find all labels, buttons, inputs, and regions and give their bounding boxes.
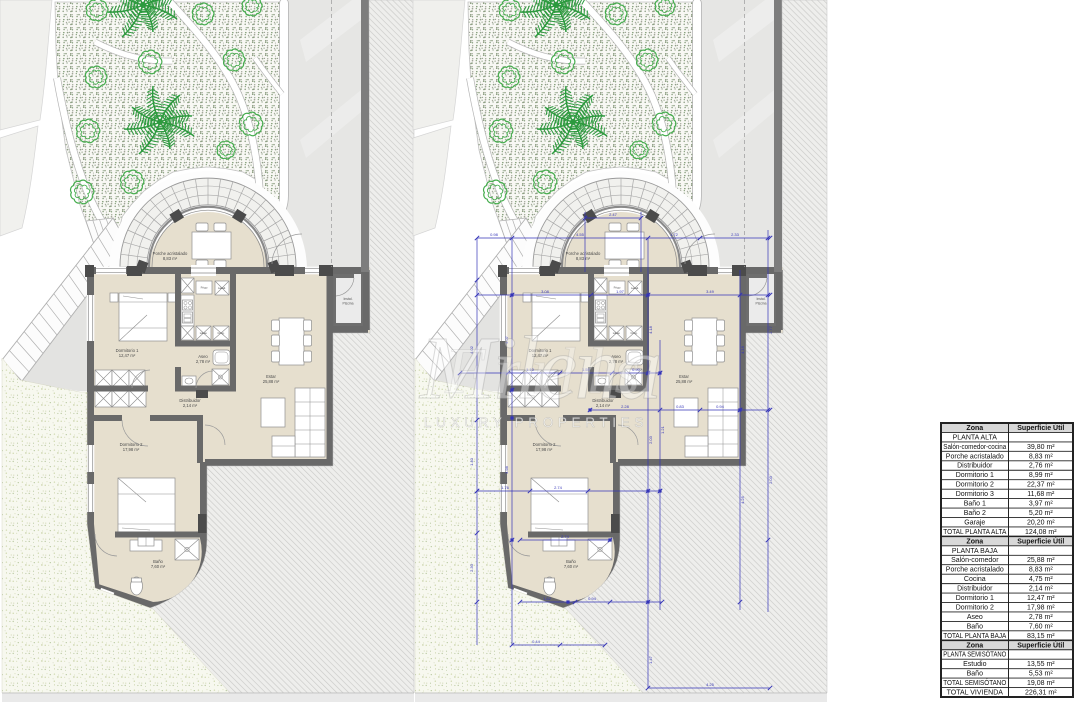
svg-text:22,37 m²: 22,37 m² [1027, 482, 1055, 489]
svg-text:Zona: Zona [966, 425, 983, 432]
svg-text:2,14 m²: 2,14 m² [183, 403, 198, 408]
svg-text:12,47 m²: 12,47 m² [1027, 595, 1055, 602]
svg-text:Porche acristalado: Porche acristalado [946, 453, 1004, 460]
svg-text:PLANTA SEMISÓTANO: PLANTA SEMISÓTANO [943, 650, 1006, 659]
svg-text:Distribuidor: Distribuidor [957, 586, 993, 593]
svg-text:Zona: Zona [966, 538, 983, 545]
svg-text:3.08: 3.08 [541, 289, 550, 294]
svg-text:2,78 m²: 2,78 m² [1029, 614, 1053, 621]
svg-text:TOTAL PLANTA ALTA: TOTAL PLANTA ALTA [943, 529, 1006, 536]
svg-text:2,14 m²: 2,14 m² [1029, 586, 1053, 593]
svg-text:3.98: 3.98 [504, 465, 509, 474]
svg-text:2.33: 2.33 [731, 232, 740, 237]
svg-text:Dormitorio 2: Dormitorio 2 [956, 482, 994, 489]
svg-text:Porche acristalado: Porche acristalado [946, 567, 1004, 574]
svg-text:Frigo: Frigo [201, 286, 208, 290]
svg-text:Salón-comedor-cocina: Salón-comedor-cocina [943, 444, 1006, 451]
svg-text:2.03: 2.03 [648, 435, 653, 444]
svg-text:8,83 m²: 8,83 m² [1029, 453, 1053, 460]
svg-text:2.77: 2.77 [768, 325, 773, 334]
svg-text:Superficie Útil: Superficie Útil [1017, 640, 1064, 649]
svg-text:Lavad.: Lavad. [218, 286, 226, 290]
svg-text:Dormitorio 1: Dormitorio 1 [956, 472, 994, 479]
svg-text:3.49: 3.49 [706, 289, 715, 294]
svg-text:Superficie Útil: Superficie Útil [1017, 536, 1064, 545]
svg-text:124,08 m²: 124,08 m² [1025, 529, 1057, 536]
svg-text:2,76 m²: 2,76 m² [1029, 463, 1053, 470]
svg-text:Dormitorio 3: Dormitorio 3 [956, 491, 994, 498]
svg-text:1.21: 1.21 [660, 425, 665, 434]
svg-text:4.18: 4.18 [740, 345, 745, 354]
svg-text:7,60 m²: 7,60 m² [1029, 623, 1053, 630]
svg-text:8,83 m²: 8,83 m² [1029, 567, 1053, 574]
svg-text:Garaje: Garaje [964, 519, 985, 526]
svg-text:20,20 m²: 20,20 m² [1027, 519, 1055, 526]
svg-text:3,97 m²: 3,97 m² [1029, 501, 1053, 508]
svg-text:25,88 m²: 25,88 m² [263, 379, 280, 384]
svg-text:2.03: 2.03 [768, 475, 773, 484]
svg-text:Cong.: Cong. [218, 331, 225, 335]
svg-text:226,31 m²: 226,31 m² [1025, 690, 1057, 697]
svg-text:25,88 m²: 25,88 m² [1027, 557, 1055, 564]
svg-text:1.40: 1.40 [469, 457, 474, 466]
svg-text:Baño 1: Baño 1 [964, 501, 986, 508]
svg-text:TOTAL PLANTA BAJA: TOTAL PLANTA BAJA [943, 633, 1006, 640]
svg-text:Estudio: Estudio [963, 661, 986, 668]
svg-text:1.62: 1.62 [543, 596, 552, 601]
svg-text:4.25: 4.25 [740, 495, 745, 504]
svg-text:1.76: 1.76 [501, 485, 510, 490]
svg-text:8,83 m²: 8,83 m² [163, 256, 178, 261]
svg-text:TOTAL SEMISÓTANO: TOTAL SEMISÓTANO [943, 678, 1006, 687]
svg-text:Superficie Útil: Superficie Útil [1017, 423, 1064, 432]
svg-text:83,15 m²: 83,15 m² [1027, 633, 1055, 640]
svg-text:11,68 m²: 11,68 m² [1027, 491, 1055, 498]
svg-text:17,98 m²: 17,98 m² [1027, 604, 1055, 611]
svg-text:Zona: Zona [966, 642, 983, 649]
svg-text:1.97: 1.97 [616, 289, 625, 294]
svg-text:13,55 m²: 13,55 m² [1027, 661, 1055, 668]
svg-text:1.72: 1.72 [670, 232, 679, 237]
svg-text:LUXURY PROPERTIES: LUXURY PROPERTIES [424, 415, 648, 430]
svg-text:8,99 m²: 8,99 m² [1029, 472, 1053, 479]
svg-text:0.94: 0.94 [716, 404, 725, 409]
svg-text:5,20 m²: 5,20 m² [1029, 510, 1053, 517]
svg-text:TOTAL VIVIENDA: TOTAL VIVIENDA [947, 690, 1004, 697]
svg-text:19,08 m²: 19,08 m² [1027, 680, 1055, 687]
svg-text:Salón-comedor: Salón-comedor [951, 557, 999, 564]
svg-text:Dormitorio 1: Dormitorio 1 [956, 595, 994, 602]
svg-text:Aseo: Aseo [967, 614, 983, 621]
svg-text:39,80 m²: 39,80 m² [1027, 444, 1055, 451]
svg-text:4.55: 4.55 [576, 232, 585, 237]
svg-text:Baño: Baño [967, 623, 983, 630]
svg-text:Dormitorio 2: Dormitorio 2 [956, 604, 994, 611]
svg-text:2.30: 2.30 [469, 563, 474, 572]
svg-text:Baño: Baño [967, 671, 983, 678]
svg-text:0.44: 0.44 [532, 639, 541, 644]
svg-text:Distribuidor: Distribuidor [957, 463, 993, 470]
svg-text:4,75 m²: 4,75 m² [1029, 576, 1053, 583]
svg-text:Piscina: Piscina [343, 302, 354, 306]
svg-text:2.74: 2.74 [561, 534, 570, 539]
svg-text:Cocina: Cocina [964, 576, 986, 583]
svg-text:0.98: 0.98 [490, 232, 499, 237]
svg-text:0.83: 0.83 [676, 404, 685, 409]
svg-text:7,60 m²: 7,60 m² [151, 564, 166, 569]
svg-text:4.25: 4.25 [706, 682, 715, 687]
svg-text:5,53 m²: 5,53 m² [1029, 671, 1053, 678]
svg-text:PLANTA ALTA: PLANTA ALTA [953, 434, 998, 441]
svg-text:1.47: 1.47 [648, 655, 653, 664]
svg-text:Baño 2: Baño 2 [964, 510, 986, 517]
svg-text:Instal.: Instal. [343, 297, 352, 301]
svg-text:17,98 m²: 17,98 m² [123, 447, 140, 452]
svg-text:PLANTA BAJA: PLANTA BAJA [952, 548, 998, 555]
svg-text:2.74: 2.74 [554, 485, 563, 490]
svg-text:12,47 m²: 12,47 m² [119, 353, 136, 358]
svg-text:0.94: 0.94 [588, 596, 597, 601]
svg-text:2,78 m²: 2,78 m² [196, 359, 211, 364]
svg-text:2.47: 2.47 [609, 212, 618, 217]
svg-text:Lavav.: Lavav. [200, 331, 208, 335]
